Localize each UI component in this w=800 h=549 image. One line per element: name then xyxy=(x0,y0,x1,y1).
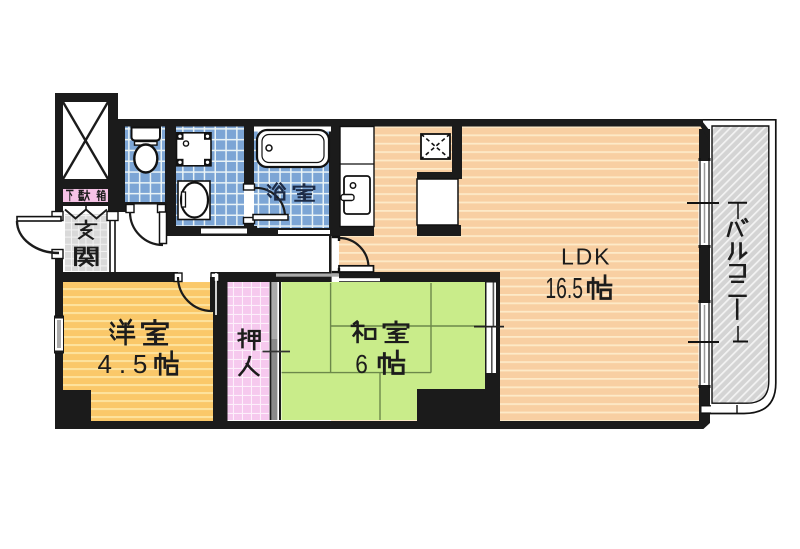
svg-text:6: 6 xyxy=(355,349,368,379)
svg-text:4.5: 4.5 xyxy=(98,349,148,379)
svg-text:LDK: LDK xyxy=(561,243,610,269)
svg-text:16.5: 16.5 xyxy=(545,273,583,305)
